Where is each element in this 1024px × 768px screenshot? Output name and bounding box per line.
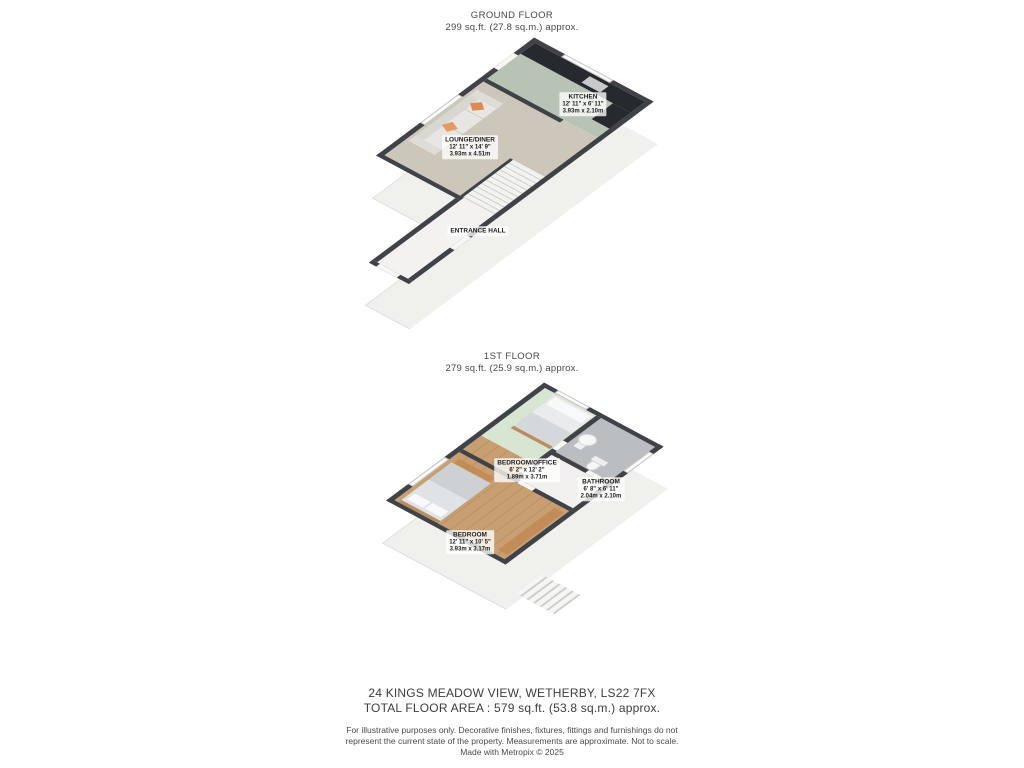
- room-name: LOUNGE/DINER: [445, 136, 495, 144]
- room-name: BATHROOM: [581, 478, 622, 486]
- room-dims-imperial: 12' 11" x 10' 5": [449, 539, 491, 546]
- room-name: ENTRANCE HALL: [450, 227, 505, 235]
- disclaimer-line-3: Made with Metropix © 2025: [0, 747, 1024, 758]
- bedroom-office-label: BEDROOM/OFFICE 6' 2" x 12' 2" 1.89m x 3.…: [494, 458, 560, 482]
- room-dims-metric: 3.93m x 4.51m: [445, 151, 495, 158]
- room-name: KITCHEN: [562, 93, 603, 101]
- room-dims-imperial: 12' 11" x 14' 9": [445, 144, 495, 151]
- room-dims-metric: 1.89m x 3.71m: [497, 474, 557, 481]
- disclaimer-line-2: represent the current state of the prope…: [0, 736, 1024, 747]
- first-floor-area: 279 sq.ft. (25.9 sq.m.) approx.: [0, 363, 1024, 374]
- room-name: BEDROOM: [449, 531, 491, 539]
- floorplan-page: { "floors": [ { "title": "GROUND FLOOR",…: [0, 0, 1024, 768]
- room-dims-imperial: 6' 2" x 12' 2": [497, 467, 557, 474]
- total-floor-area: TOTAL FLOOR AREA : 579 sq.ft. (53.8 sq.m…: [0, 701, 1024, 715]
- bathroom-label: BATHROOM 6' 8" x 6' 11" 2.04m x 2.10m: [578, 477, 625, 501]
- first-floor-title: 1ST FLOOR: [0, 351, 1024, 362]
- disclaimer-line-1: For illustrative purposes only. Decorati…: [0, 725, 1024, 736]
- lounge-diner-label: LOUNGE/DINER 12' 11" x 14' 9" 3.93m x 4.…: [442, 135, 498, 159]
- room-name: BEDROOM/OFFICE: [497, 459, 557, 467]
- room-dims-metric: 3.93m x 3.17m: [449, 546, 491, 553]
- orange-pillow: [470, 102, 484, 111]
- room-dims-imperial: 6' 8" x 6' 11": [581, 486, 622, 493]
- bedroom-label: BEDROOM 12' 11" x 10' 5" 3.93m x 3.17m: [446, 530, 494, 554]
- property-address: 24 KINGS MEADOW VIEW, WETHERBY, LS22 7FX: [0, 686, 1024, 700]
- ground-floor-title: GROUND FLOOR: [0, 10, 1024, 21]
- room-dims-metric: 3.93m x 2.10m: [562, 108, 603, 115]
- ground-floor-area: 299 sq.ft. (27.8 sq.m.) approx.: [0, 22, 1024, 33]
- room-dims-metric: 2.04m x 2.10m: [581, 493, 622, 500]
- room-dims-imperial: 12' 11" x 6' 11": [562, 101, 603, 108]
- kitchen-label: KITCHEN 12' 11" x 6' 11" 3.93m x 2.10m: [559, 92, 606, 116]
- entrance-hall-label: ENTRANCE HALL: [447, 226, 508, 236]
